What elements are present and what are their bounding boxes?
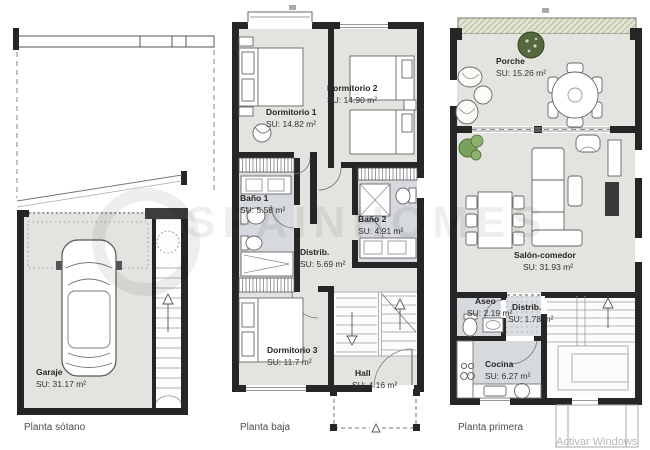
armchair (576, 135, 600, 152)
activation-watermark: Activar Windows (556, 436, 637, 448)
floorplan-drawing (0, 0, 650, 450)
room-label-bano-2: Baño 2 SU: 4.91 m² (358, 214, 403, 237)
entry-porch (330, 389, 420, 432)
tree-icon (518, 32, 544, 58)
dining-table (466, 192, 524, 248)
room-label-distrib-baja: Distrib. SU: 5.69 m² (300, 247, 345, 270)
room-label-porche: Porche SU: 15.26 m² (496, 56, 546, 79)
room-label-dormitorio-3: Dormitorio 3 SU: 11.7 m² (267, 345, 318, 368)
room-label-hall: Hall SU: 4.16 m² (352, 368, 397, 391)
room-label-cocina: Cocina SU: 6.27 m² (485, 359, 530, 382)
room-label-dormitorio-1: Dormitorio 1 SU: 14.82 m² (266, 107, 317, 130)
car-icon (56, 240, 122, 376)
double-bed (239, 37, 303, 116)
plan-title-sotano: Planta sótano (24, 422, 85, 433)
basement-plan (13, 28, 214, 415)
room-label-distrib-primera: Distrib. SU: 1.78 m² (508, 302, 553, 325)
plan-title-baja: Planta baja (240, 422, 290, 433)
room-label-garaje: Garaje SU: 31.17 m² (36, 367, 86, 390)
room-label-salon-comedor: Salón-comedor SU: 31.93 m² (514, 250, 576, 273)
floorplan-sheet: Garaje SU: 31.17 m² Dormitorio 1 SU: 14.… (0, 0, 650, 450)
plan-title-primera: Planta primera (458, 422, 523, 433)
room-label-aseo: Aseo SU: 2.19 m² (467, 296, 512, 319)
room-label-dormitorio-2: Dormitorio 2 SU: 14.90 m² (327, 83, 378, 106)
room-label-bano-1: Baño 1 SU: 5.58 m² (240, 193, 285, 216)
